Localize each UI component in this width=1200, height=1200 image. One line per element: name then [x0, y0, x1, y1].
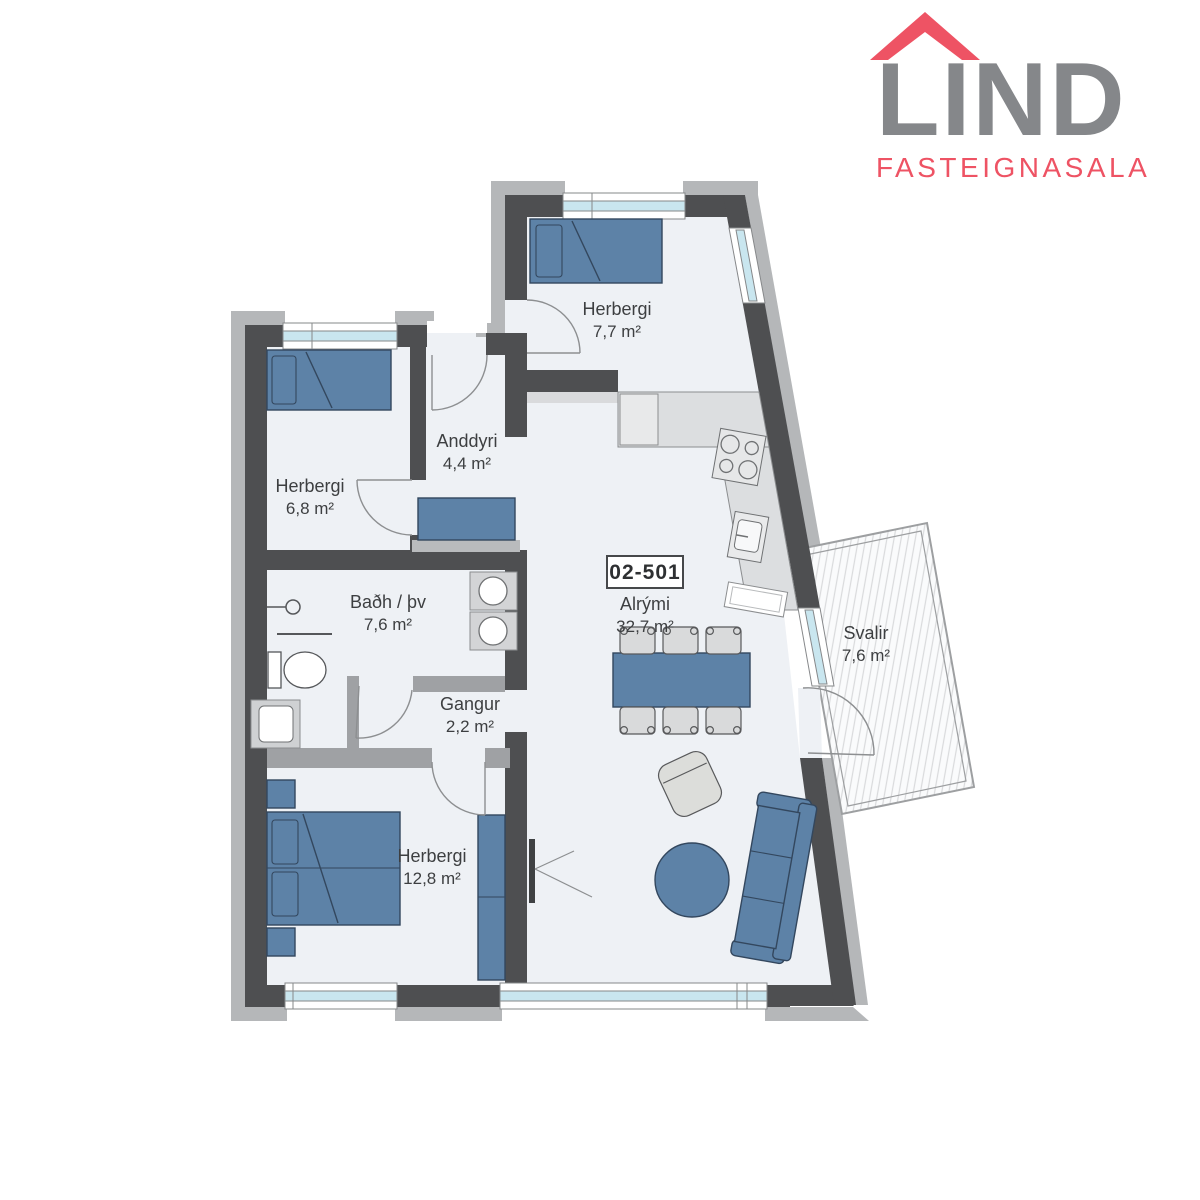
nightstand — [267, 928, 295, 956]
fridge — [620, 394, 658, 445]
dining-chair — [706, 707, 741, 734]
window-left-bedroom — [283, 323, 397, 349]
unit-number: 02-501 — [609, 561, 680, 584]
bathroom-sink — [251, 700, 300, 748]
room-label-bathroom: Baðh / þv — [350, 592, 426, 612]
wardrobe — [478, 815, 505, 980]
exterior-mask — [427, 321, 487, 333]
kitchen-sink — [727, 511, 768, 562]
room-label-herbergi-left: Herbergi — [275, 476, 344, 496]
stove — [712, 428, 766, 485]
dining-chair — [620, 707, 655, 734]
floorplan-canvas: Svalir 7,6 m² — [0, 0, 1200, 1200]
dining-table — [613, 653, 750, 707]
room-area-herbergi-top: 7,7 m² — [593, 322, 642, 341]
toilet — [268, 652, 326, 688]
coffee-table — [655, 843, 729, 917]
room-area-gangur: 2,2 m² — [446, 717, 495, 736]
single-bed-top — [530, 219, 662, 283]
room-label-herbergi-top: Herbergi — [582, 299, 651, 319]
room-label-alrymi: Alrými — [620, 594, 670, 614]
nightstand — [267, 780, 295, 808]
dryer — [470, 612, 517, 650]
logo: LIND FASTEIGNASALA — [870, 12, 1150, 183]
room-area-herbergi-left: 6,8 m² — [286, 499, 335, 518]
logo-tagline: FASTEIGNASALA — [876, 152, 1150, 183]
room-area-svalir: 7,6 m² — [842, 646, 891, 665]
window-master-bedroom — [285, 983, 397, 1009]
floorplan-page: Svalir 7,6 m² — [0, 0, 1200, 1200]
window-top-bedroom — [563, 193, 685, 219]
logo-brand: LIND — [876, 42, 1127, 158]
room-label-anddyri: Anddyri — [436, 431, 497, 451]
room-label-gangur: Gangur — [440, 694, 500, 714]
single-bed-left — [267, 350, 391, 410]
room-area-anddyri: 4,4 m² — [443, 454, 492, 473]
hall-closet — [418, 498, 515, 540]
room-label-svalir: Svalir — [843, 623, 888, 643]
room-area-bathroom: 7,6 m² — [364, 615, 413, 634]
unit-number-badge: 02-501 — [607, 556, 683, 588]
dining-chair — [663, 707, 698, 734]
room-area-alrymi: 32,7 m² — [616, 617, 674, 636]
washer — [470, 572, 517, 610]
window-living-room — [500, 983, 767, 1009]
dining-chair — [706, 627, 741, 654]
room-area-herbergi-master: 12,8 m² — [403, 869, 461, 888]
balcony-door-opening — [798, 688, 822, 758]
room-label-herbergi-master: Herbergi — [397, 846, 466, 866]
